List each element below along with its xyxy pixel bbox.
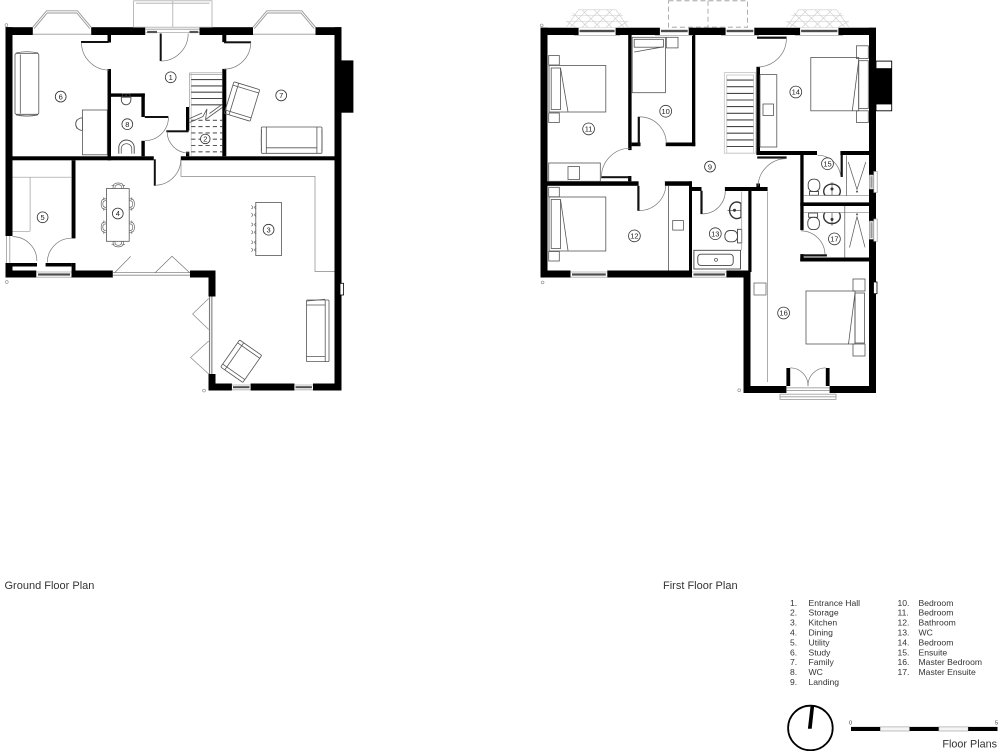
svg-text:Ensuite: Ensuite [919, 647, 948, 657]
svg-text:Entrance Hall: Entrance Hall [809, 598, 861, 608]
svg-text:0: 0 [849, 721, 852, 727]
svg-text:14: 14 [792, 88, 800, 97]
svg-text:13: 13 [711, 229, 719, 238]
svg-text:Kitchen: Kitchen [809, 618, 838, 628]
svg-text:7: 7 [279, 91, 283, 100]
svg-text:12: 12 [630, 232, 638, 241]
svg-text:Master Bedroom: Master Bedroom [919, 657, 983, 667]
svg-text:4: 4 [116, 209, 120, 218]
svg-text:16: 16 [779, 309, 787, 318]
svg-text:Floor Plans: Floor Plans [942, 739, 997, 751]
svg-text:Utility: Utility [809, 637, 831, 647]
svg-text:6: 6 [59, 92, 63, 101]
svg-text:14.: 14. [898, 637, 910, 647]
svg-text:Ground Floor Plan: Ground Floor Plan [5, 580, 95, 592]
svg-text:7.: 7. [790, 657, 797, 667]
svg-text:Master Ensuite: Master Ensuite [919, 667, 977, 677]
svg-text:9.: 9. [790, 677, 797, 687]
svg-text:3.: 3. [790, 618, 797, 628]
svg-text:1: 1 [169, 73, 173, 82]
svg-text:11.: 11. [898, 608, 909, 618]
svg-text:5: 5 [41, 213, 45, 222]
svg-text:9: 9 [708, 162, 712, 171]
svg-text:Bedroom: Bedroom [919, 598, 954, 608]
svg-text:Bedroom: Bedroom [919, 637, 954, 647]
svg-text:2.: 2. [790, 608, 797, 618]
svg-text:8.: 8. [790, 667, 797, 677]
svg-text:15: 15 [823, 159, 831, 168]
svg-text:12.: 12. [898, 618, 910, 628]
svg-text:Landing: Landing [809, 677, 840, 687]
svg-text:10: 10 [662, 107, 670, 116]
svg-text:6.: 6. [790, 647, 797, 657]
svg-text:3: 3 [267, 225, 271, 234]
svg-text:5.: 5. [790, 637, 797, 647]
svg-text:15.: 15. [898, 647, 910, 657]
svg-text:17.: 17. [898, 667, 910, 677]
svg-text:WC: WC [809, 667, 823, 677]
svg-text:4.: 4. [790, 628, 797, 638]
svg-text:10.: 10. [898, 598, 910, 608]
svg-text:2: 2 [203, 135, 207, 144]
svg-text:Dining: Dining [809, 628, 834, 638]
svg-text:Study: Study [809, 647, 832, 657]
svg-text:First Floor Plan: First Floor Plan [663, 580, 738, 592]
svg-text:Bedroom: Bedroom [919, 608, 954, 618]
svg-text:5: 5 [995, 721, 998, 727]
svg-text:16.: 16. [898, 657, 910, 667]
svg-text:8: 8 [125, 120, 129, 129]
svg-text:WC: WC [919, 628, 933, 638]
svg-text:11: 11 [585, 125, 593, 134]
svg-text:Storage: Storage [809, 608, 839, 618]
svg-text:13.: 13. [898, 628, 910, 638]
svg-text:1.: 1. [790, 598, 797, 608]
svg-text:Bathroom: Bathroom [919, 618, 956, 628]
svg-text:17: 17 [830, 235, 838, 244]
svg-text:Family: Family [809, 657, 835, 667]
